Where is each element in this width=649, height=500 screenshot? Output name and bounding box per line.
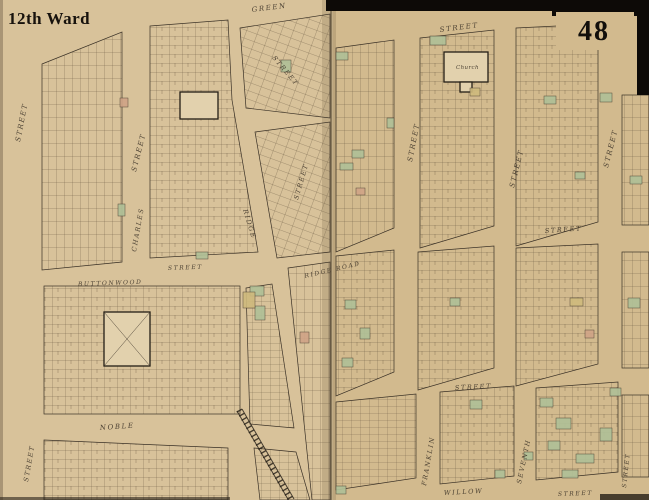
ward-title: 12th Ward	[8, 9, 90, 28]
green-building	[118, 204, 125, 216]
city-block	[44, 440, 228, 500]
green-building	[630, 176, 642, 184]
city-block	[622, 252, 649, 368]
city-block	[622, 95, 649, 225]
green-building	[345, 300, 356, 309]
green-building	[336, 52, 348, 60]
green-building	[450, 298, 460, 306]
city-block	[336, 250, 394, 396]
green-building	[387, 118, 394, 128]
salmon-building	[300, 332, 309, 343]
green-building	[548, 441, 560, 450]
left-edge	[0, 0, 3, 500]
city-block	[516, 244, 598, 386]
yellow-building	[243, 292, 255, 308]
city-block	[336, 40, 394, 252]
street-label: STREET	[168, 264, 203, 272]
yellow-building	[570, 298, 583, 306]
atlas-map: 12th Ward 48 GREEN STREET STREET STREET …	[0, 0, 649, 500]
city-block	[516, 24, 598, 246]
green-building	[600, 428, 612, 441]
green-building	[430, 36, 446, 45]
green-building	[495, 470, 505, 478]
green-building	[352, 150, 364, 158]
green-building	[196, 252, 208, 259]
salmon-building	[585, 330, 594, 338]
church-label: Church	[456, 65, 479, 71]
green-building	[336, 486, 346, 494]
bottom-right-edge	[600, 494, 649, 500]
green-building	[340, 163, 353, 170]
yellow-building	[470, 88, 480, 96]
city-block	[418, 246, 494, 390]
green-building	[610, 388, 621, 396]
green-building	[556, 418, 571, 429]
green-building	[540, 398, 553, 407]
sheet-number: 48	[578, 16, 610, 47]
city-block	[336, 394, 416, 490]
street-label: STREET	[558, 490, 593, 498]
green-building	[544, 96, 556, 104]
green-building	[342, 358, 353, 367]
city-block	[42, 32, 122, 270]
green-building	[470, 400, 482, 409]
green-building	[255, 306, 265, 320]
green-building	[562, 470, 578, 478]
map-canvas: 12th Ward 48 GREEN STREET STREET STREET …	[0, 0, 649, 500]
green-building	[600, 93, 612, 102]
large-building	[180, 92, 218, 119]
green-building	[576, 454, 594, 463]
green-building	[628, 298, 640, 308]
green-building	[575, 172, 585, 179]
green-building	[360, 328, 370, 339]
salmon-building	[356, 188, 365, 195]
salmon-building	[120, 98, 128, 107]
right-border	[637, 0, 649, 95]
